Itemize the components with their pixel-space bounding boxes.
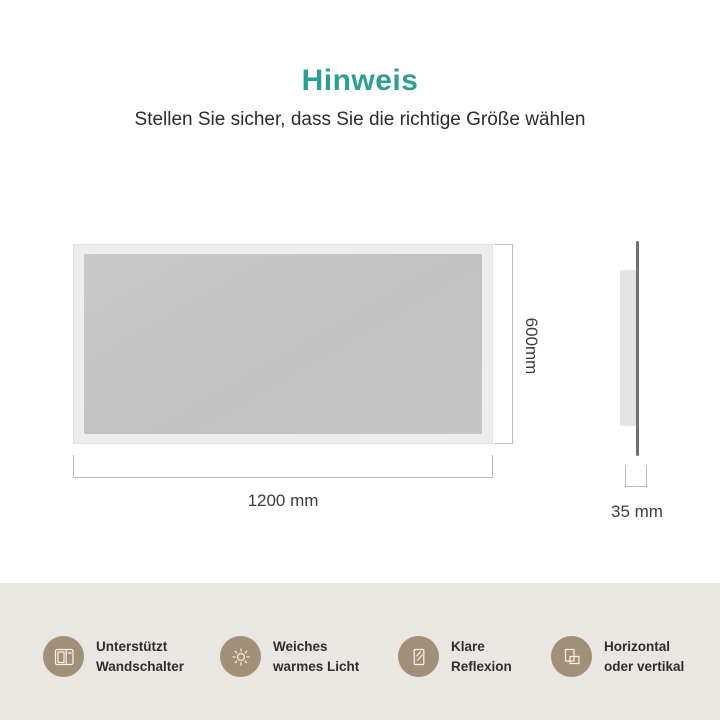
feature-text-line: Horizontal [604, 637, 684, 657]
mirror-side-backing [620, 270, 636, 426]
feature-label: Unterstützt Wandschalter [96, 637, 184, 677]
page-title: Hinweis [0, 64, 720, 98]
height-dimension-bracket [494, 244, 513, 444]
feature-text-line: Reflexion [451, 657, 512, 677]
depth-dimension-label: 35 mm [596, 502, 678, 522]
width-dimension-bracket [73, 455, 493, 478]
depth-dimension-bracket [625, 465, 647, 487]
mirror-side-edge [636, 241, 639, 456]
feature-text-line: Klare [451, 637, 512, 657]
feature-label: Klare Reflexion [451, 637, 512, 677]
feature-text-line: Wandschalter [96, 657, 184, 677]
feature-label: Horizontal oder vertikal [604, 637, 684, 677]
feature-warm-light: Weiches warmes Licht [220, 636, 359, 677]
height-dimension-label: 600mm [521, 315, 541, 377]
page-subtitle: Stellen Sie sicher, dass Sie die richtig… [0, 109, 720, 131]
feature-clear-reflection: Klare Reflexion [398, 636, 512, 677]
mirror-glass [84, 254, 482, 434]
mirror-reflection-icon [398, 636, 439, 677]
feature-text-line: warmes Licht [273, 657, 359, 677]
wall-switch-icon [43, 636, 84, 677]
product-dimension-infographic: Hinweis Stellen Sie sicher, dass Sie die… [0, 0, 720, 720]
feature-text-line: Unterstützt [96, 637, 184, 657]
orientation-icon [551, 636, 592, 677]
sun-icon [220, 636, 261, 677]
feature-wall-switch: Unterstützt Wandschalter [43, 636, 184, 677]
width-dimension-label: 1200 mm [73, 491, 493, 511]
feature-orientation: Horizontal oder vertikal [551, 636, 684, 677]
feature-label: Weiches warmes Licht [273, 637, 359, 677]
mirror-front-view [73, 244, 493, 444]
feature-text-line: Weiches [273, 637, 359, 657]
feature-text-line: oder vertikal [604, 657, 684, 677]
